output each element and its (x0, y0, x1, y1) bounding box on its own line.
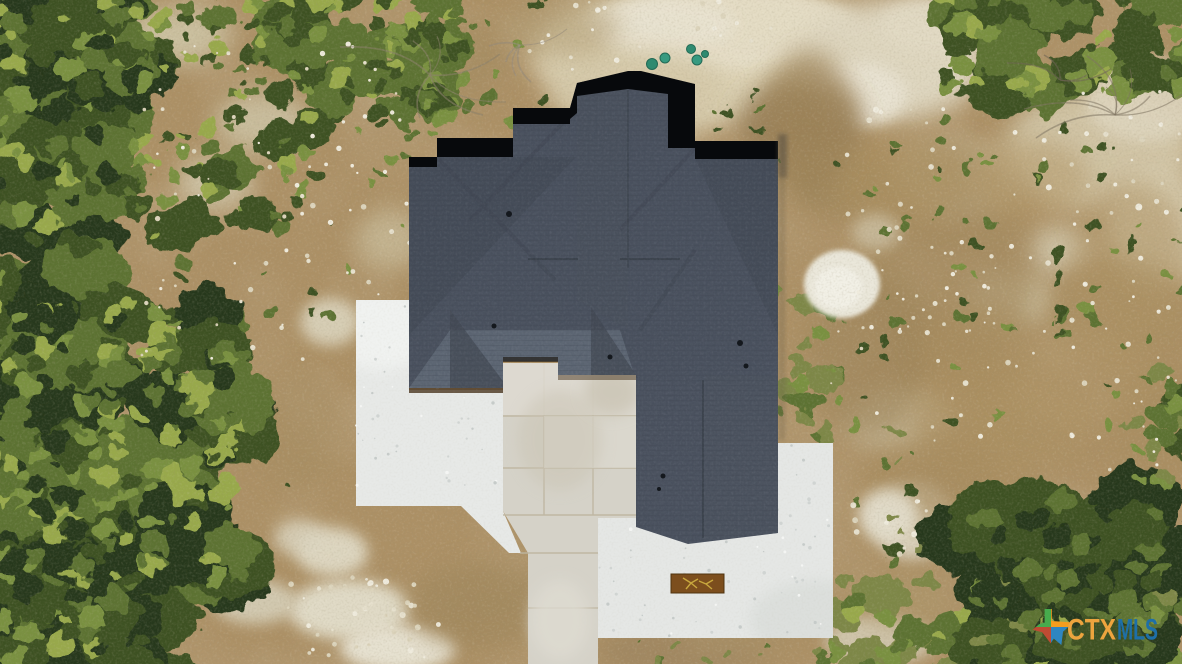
svg-text:CTX: CTX (1067, 614, 1116, 647)
svg-text:MLS: MLS (1117, 614, 1158, 647)
